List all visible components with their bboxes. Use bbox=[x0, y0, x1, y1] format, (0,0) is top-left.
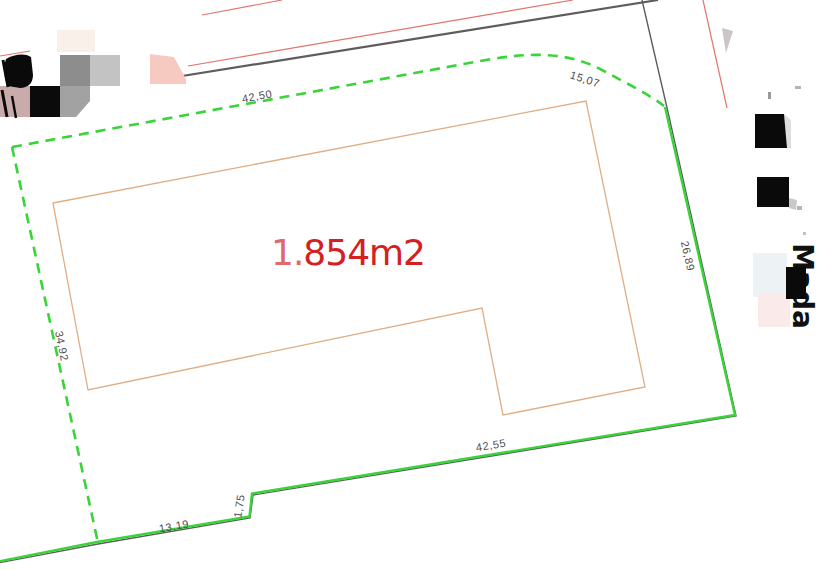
redaction-block bbox=[755, 114, 787, 148]
parcel-area-prefix: 1. bbox=[271, 232, 303, 273]
parcel-boundary bbox=[0, 55, 735, 562]
road-pink-patch bbox=[150, 54, 186, 84]
redaction-block-over-note bbox=[786, 267, 806, 299]
redaction-smudge bbox=[57, 30, 95, 52]
parcel-area-value: 854m2 bbox=[303, 232, 425, 273]
stray-mark bbox=[803, 232, 806, 235]
redaction-cell bbox=[90, 55, 120, 86]
redaction-triangle bbox=[722, 28, 733, 53]
stray-mark bbox=[795, 86, 801, 89]
redaction-tail bbox=[789, 198, 797, 210]
road-edge-lines bbox=[0, 0, 727, 108]
redaction-faint-block bbox=[753, 253, 787, 297]
road-edge-line-right bbox=[703, 0, 727, 108]
redaction-cell bbox=[60, 55, 90, 86]
plan-drawing bbox=[0, 0, 822, 570]
redaction-cell bbox=[60, 86, 90, 117]
road-edge-line-upper bbox=[202, 0, 282, 15]
parcel-plan: 42,50 15,07 26,89 34,92 42,55 1,75 13,19… bbox=[0, 0, 822, 570]
stray-mark bbox=[768, 92, 771, 99]
redaction-cell bbox=[30, 86, 60, 117]
redaction-block bbox=[757, 177, 789, 207]
boundary-solid-right-bottom bbox=[0, 107, 735, 562]
redaction-mosaic-top-left bbox=[0, 30, 186, 118]
parcel-area-label: 1.854m2 bbox=[271, 232, 425, 273]
stray-mark bbox=[797, 206, 802, 210]
road-gray-line-top bbox=[151, 0, 658, 81]
